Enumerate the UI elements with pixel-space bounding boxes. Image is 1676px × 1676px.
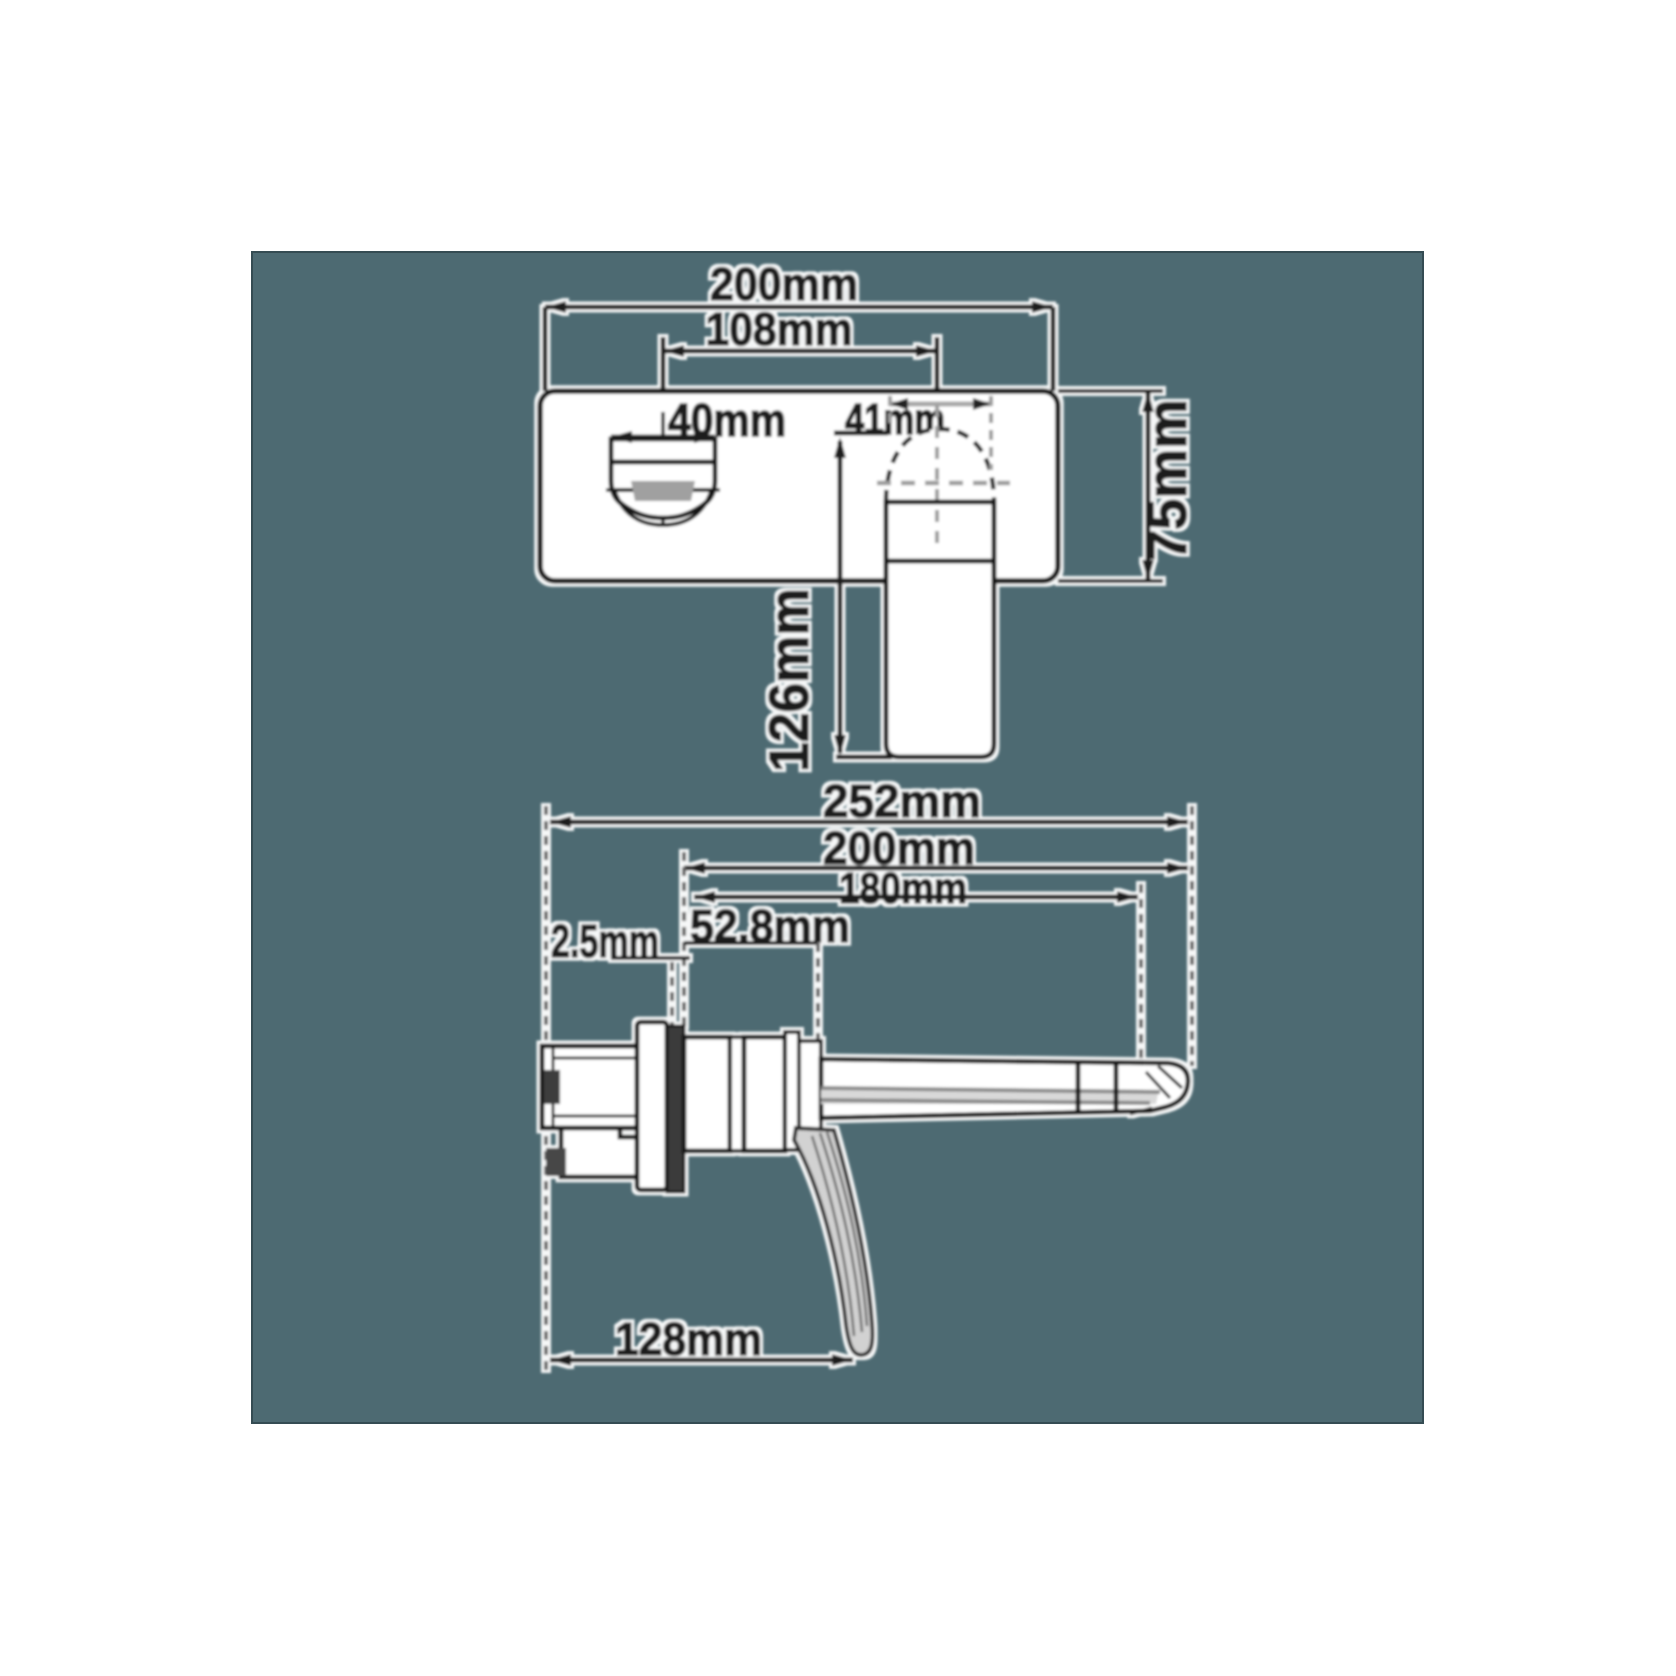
svg-text:75mm: 75mm [1135, 399, 1198, 561]
svg-text:126mm: 126mm [757, 588, 820, 772]
svg-text:40mm: 40mm [668, 394, 786, 446]
svg-text:128mm: 128mm [615, 1313, 762, 1365]
svg-text:252mm: 252mm [823, 775, 981, 827]
svg-text:108mm: 108mm [706, 303, 853, 355]
svg-text:180mm: 180mm [839, 864, 967, 913]
